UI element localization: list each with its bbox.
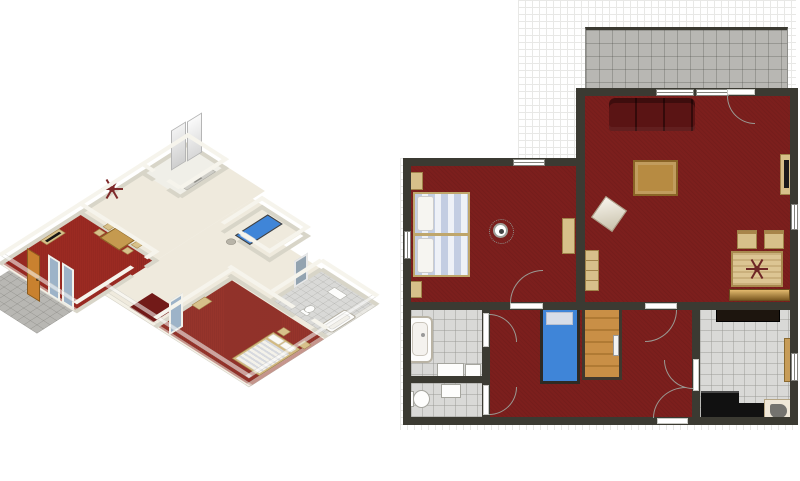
drain-icon — [421, 333, 425, 337]
door-entrance[interactable] — [657, 418, 688, 424]
terrace-floor — [585, 27, 788, 92]
wall — [576, 96, 585, 308]
window[interactable] — [791, 204, 798, 230]
kitchen-counter-top[interactable] — [716, 308, 780, 322]
single-bed[interactable] — [540, 306, 580, 384]
ceiling-lamp-dot — [499, 229, 504, 234]
door-terrace[interactable] — [727, 89, 755, 95]
coffee-table[interactable] — [633, 160, 678, 196]
dresser[interactable] — [562, 218, 575, 254]
kitchen-counter-black[interactable] — [701, 391, 739, 418]
window[interactable] — [656, 89, 694, 96]
wardrobe-door — [613, 335, 619, 356]
2d-floor-plan — [0, 0, 800, 481]
bed-pillow — [417, 238, 434, 273]
floor-plan-canvas — [0, 0, 800, 481]
wardrobe[interactable] — [582, 306, 622, 380]
wall — [403, 158, 584, 166]
bathtub-basin — [412, 322, 428, 356]
toilet-bowl[interactable] — [413, 390, 430, 408]
window[interactable] — [696, 89, 729, 96]
bed-pillow — [417, 196, 434, 231]
wall — [403, 376, 490, 383]
double-bed-upper[interactable] — [413, 192, 470, 235]
sideboard[interactable] — [729, 289, 790, 301]
chandelier-icon[interactable] — [746, 258, 768, 280]
door-bedroom[interactable] — [510, 303, 543, 309]
kitchen-counter-black[interactable] — [739, 403, 764, 418]
single-bed-pillow — [546, 312, 573, 325]
bookshelf[interactable] — [585, 250, 599, 291]
bathroom-sink[interactable] — [437, 363, 464, 377]
dining-chair[interactable] — [737, 230, 757, 249]
door-kitchen[interactable] — [693, 359, 699, 391]
sofa[interactable] — [609, 98, 695, 131]
kitchen-sink-basin — [770, 404, 787, 418]
wall — [403, 166, 411, 425]
tv[interactable] — [784, 160, 789, 188]
window[interactable] — [404, 231, 411, 259]
ceiling-lamp-icon[interactable] — [489, 219, 514, 244]
wall — [403, 417, 798, 425]
dining-chair[interactable] — [764, 230, 784, 249]
window[interactable] — [791, 353, 798, 381]
wc-sink[interactable] — [441, 384, 461, 398]
window[interactable] — [513, 159, 545, 166]
double-bed-lower[interactable] — [413, 234, 470, 277]
door-living-hall[interactable] — [645, 303, 677, 309]
wall — [403, 302, 798, 310]
